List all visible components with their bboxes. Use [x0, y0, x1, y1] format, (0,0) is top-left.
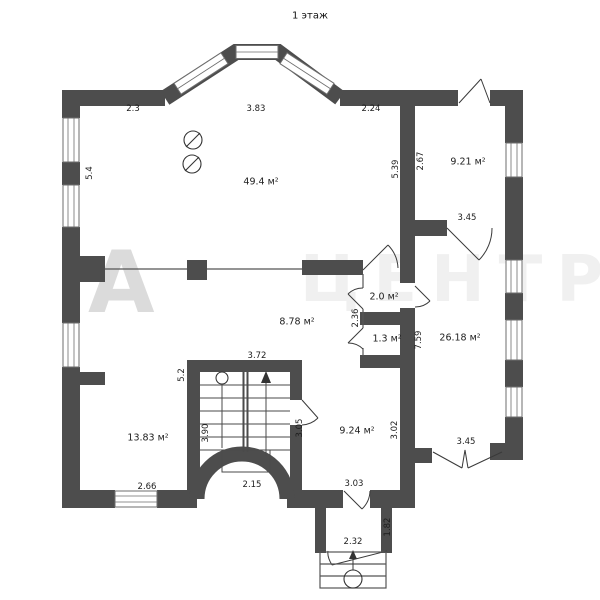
room-area-bottom-left: 13.83 м² — [127, 433, 168, 443]
dim-stair-bottom: 2.15 — [243, 481, 262, 490]
page-title: 1 этаж — [292, 11, 328, 22]
bay-window-bottom-wall — [197, 454, 287, 499]
room-area-closet: 2.0 м² — [369, 292, 398, 302]
dim-top-left: 2.3 — [126, 105, 140, 114]
dim-door-tr: 3.45 — [458, 214, 477, 223]
dim-small-right: 7.59 — [415, 331, 424, 350]
room-area-top-right: 9.21 м² — [450, 157, 485, 167]
dim-top-bay: 3.83 — [247, 105, 266, 114]
room-area-right: 26.18 м² — [439, 333, 480, 343]
dim-top-right: 2.24 — [362, 105, 381, 114]
door-to-vestibule — [344, 491, 370, 509]
door-closet-west — [348, 288, 363, 309]
room-area-bottom: 9.24 м² — [339, 426, 374, 436]
dim-closet-left: 2.36 — [352, 309, 361, 328]
porch-circle-symbol — [344, 570, 362, 588]
dim-stair-top: 3.72 — [248, 352, 267, 361]
door-to-right-room — [447, 228, 492, 260]
dim-opening-br: 3.45 — [457, 438, 476, 447]
dim-stair-height: 3.90 — [202, 424, 211, 443]
room-area-hall: 8.78 м² — [279, 317, 314, 327]
door-hall-to-living — [363, 245, 398, 270]
dim-stair-door: 3.05 — [296, 419, 305, 438]
entrance-door-porch — [328, 551, 387, 565]
floor-plan-page: А ЦЕНТР — [0, 0, 600, 600]
partition-lines — [105, 269, 363, 356]
room-area-wc: 1.3 м² — [372, 334, 401, 344]
door-closet-east — [415, 286, 430, 307]
bay-windows — [174, 46, 334, 95]
entrance-door-top-right — [459, 79, 490, 103]
stair-up-arrow — [261, 371, 271, 383]
dim-window-bl: 2.66 — [138, 483, 157, 492]
dim-left-wall: 5.4 — [86, 166, 95, 180]
floor-plan-drawing — [0, 0, 600, 600]
dim-stair-wall: 5.2 — [178, 368, 187, 382]
dim-porch-door: 2.32 — [344, 538, 363, 547]
dim-porch-side: 1.82 — [384, 518, 393, 537]
dim-door-bottom: 3.03 — [345, 480, 364, 489]
porch — [320, 550, 386, 588]
vent-symbols — [183, 131, 202, 173]
dim-living-right: 5.39 — [392, 160, 401, 179]
room-area-living: 49.4 м² — [243, 177, 278, 187]
porch-door-arrow — [349, 550, 357, 559]
stair-start-marker — [216, 372, 228, 384]
dim-room-tr-left: 2.67 — [417, 152, 426, 171]
dim-room-b-right: 3.02 — [391, 421, 400, 440]
door-wc-west — [348, 328, 363, 349]
